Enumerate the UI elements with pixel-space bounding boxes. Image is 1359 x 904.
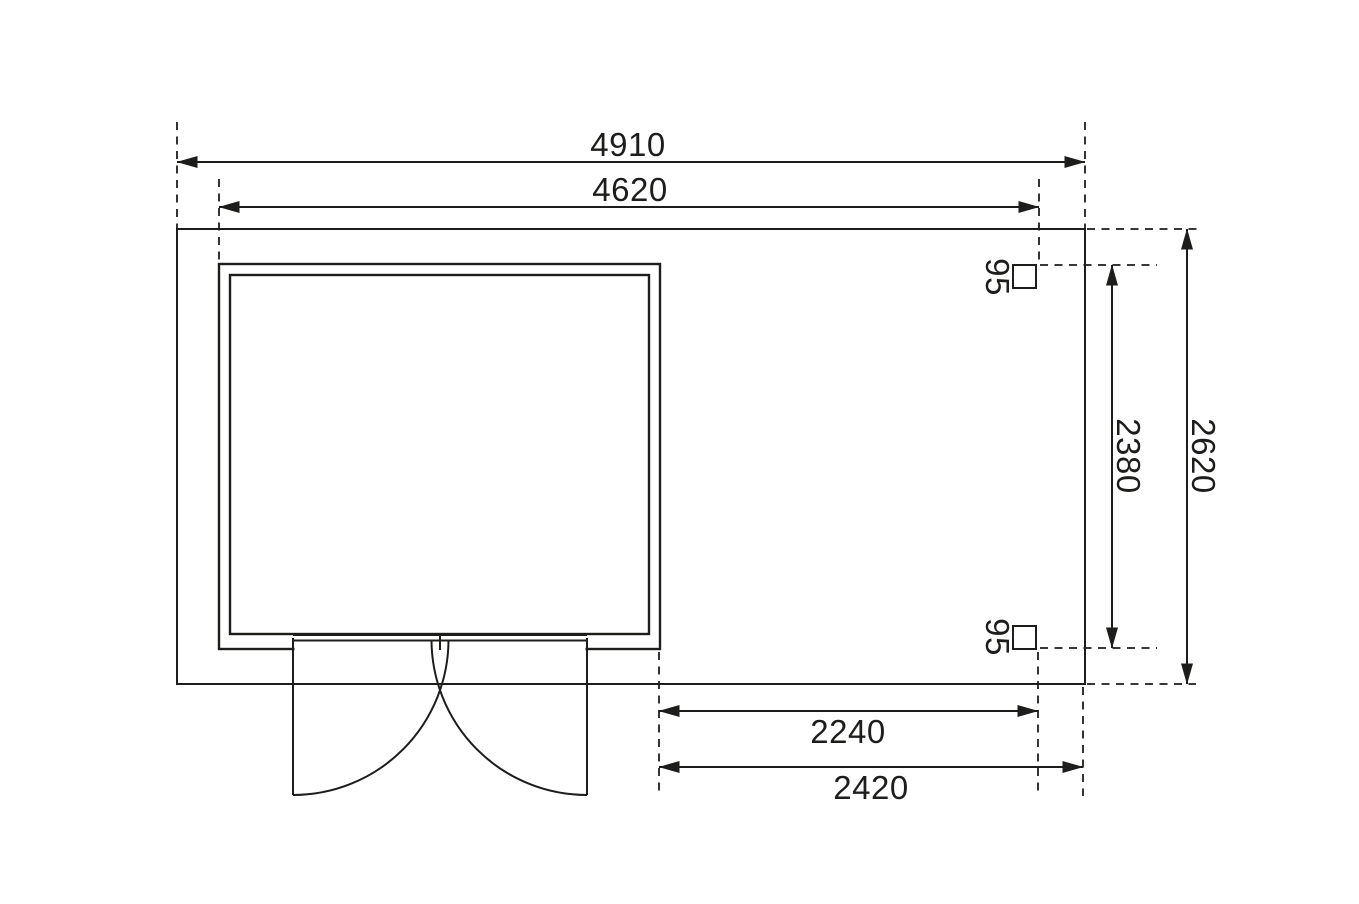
shed-outer-wall	[219, 264, 660, 649]
dimension-shed-width-label: 4620	[592, 171, 667, 208]
dimension-canopy-outer-width: 2420	[659, 767, 1083, 806]
door-swing-arc-left	[293, 640, 449, 796]
footprint-outline	[177, 229, 1085, 684]
dimension-post-size-top-label: 95	[979, 258, 1016, 296]
door-swing-arc-right	[431, 640, 587, 796]
dimension-shed-width: 4620	[219, 171, 1039, 208]
dimension-post-size-bottom: 95	[979, 618, 1016, 656]
dimension-post-span-depth: 2380	[1110, 265, 1147, 648]
dimension-canopy-outer-width-label: 2420	[833, 769, 908, 806]
dimension-canopy-inner-width: 2240	[659, 711, 1038, 750]
shed-interior	[230, 275, 649, 634]
dimension-overall-depth: 2620	[1185, 229, 1222, 684]
dimension-post-size-top: 95	[979, 258, 1016, 296]
dimension-overall-depth-label: 2620	[1185, 418, 1222, 493]
dimension-overall-width-label: 4910	[590, 126, 665, 163]
dimension-post-size-bottom-label: 95	[979, 618, 1016, 656]
dimension-overall-width: 4910	[177, 126, 1085, 163]
dimension-post-span-depth-label: 2380	[1110, 418, 1147, 493]
dimension-canopy-inner-width-label: 2240	[810, 713, 885, 750]
floor-plan-page: 4910 4620 2380 2620 95 95 2240 2420	[0, 0, 1359, 904]
floor-plan-drawing: 4910 4620 2380 2620 95 95 2240 2420	[0, 0, 1359, 904]
